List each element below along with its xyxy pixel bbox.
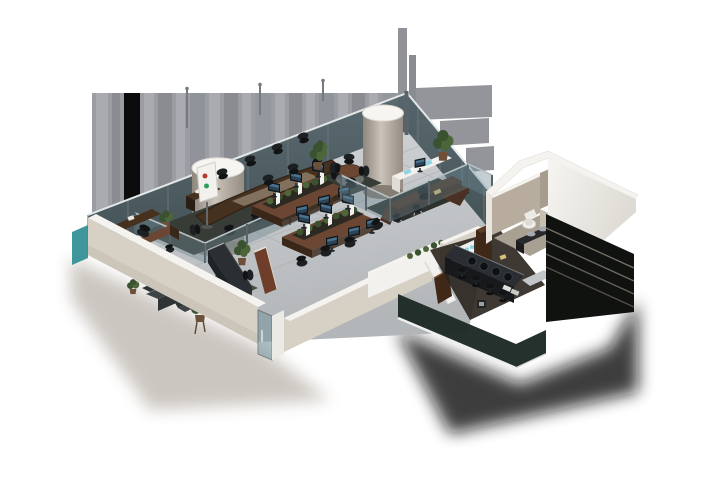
entrance-pillar: [272, 310, 284, 360]
board-red-dot: [203, 174, 208, 179]
espresso-machine: [477, 300, 486, 308]
white-wall-edge: [486, 192, 492, 244]
meeting-chair: [359, 166, 370, 177]
entrance-door: [258, 310, 272, 360]
glass-fin: [72, 225, 88, 265]
meeting-chair: [330, 163, 341, 174]
sink: [527, 232, 536, 237]
board-green-dot: [204, 184, 209, 189]
render-canvas: 3D Office Floor Plan Render: [0, 0, 722, 500]
office-floorplan-render: 3D Office Floor Plan Render: [0, 0, 722, 500]
corner-post: [405, 91, 409, 135]
meeting-chair: [344, 154, 355, 165]
